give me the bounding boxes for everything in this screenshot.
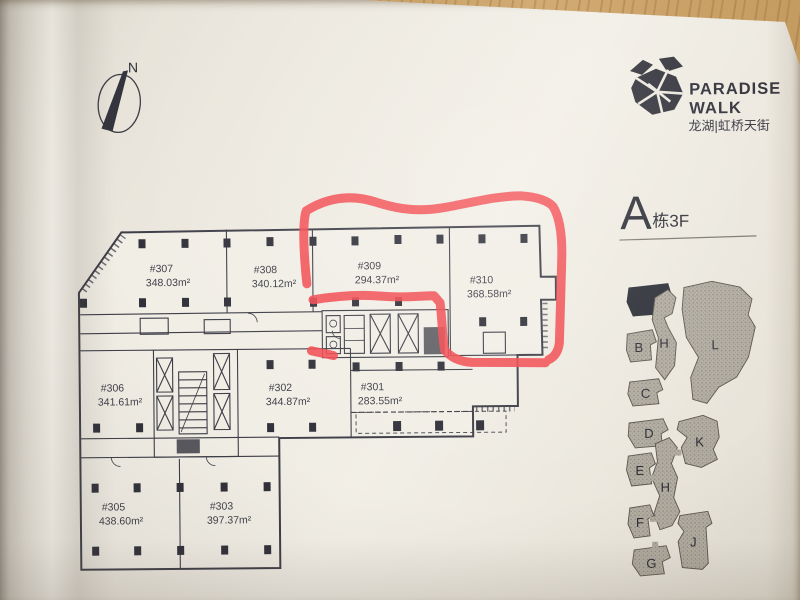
building-g-label: G [646, 556, 656, 571]
room-301-id: #301 [361, 381, 385, 393]
building-l-label: L [711, 337, 718, 352]
room-308-area: 340.12m² [252, 278, 297, 290]
building-e-label: E [635, 463, 644, 478]
floor-plan: #307 348.03m² #308 340.12m² #309 294.37m… [78, 196, 564, 570]
room-309-area: 294.37m² [355, 274, 400, 286]
photo-of-floorplan-page: N PARADISE WALK [0, 0, 800, 600]
room-305-id: #305 [102, 501, 126, 513]
north-label: N [128, 59, 138, 75]
building-h-upper-label: H [659, 336, 669, 351]
page-drawing: N PARADISE WALK [0, 0, 800, 600]
paradise-walk-logo: PARADISE WALK 龙湖|虹桥天街 [630, 56, 782, 134]
room-301-area: 283.55m² [358, 395, 403, 407]
room-310-id: #310 [470, 274, 494, 286]
building-b-label: B [634, 340, 643, 355]
room-307-area: 348.03m² [146, 277, 191, 289]
building-f-label: F [636, 515, 644, 530]
compass-icon: N [95, 59, 143, 134]
room-303-id: #303 [210, 500, 234, 512]
paper-sheet: N PARADISE WALK [0, 0, 800, 600]
floor-title-suffix: 栋3F [652, 211, 689, 230]
room-303-area: 397.37m² [207, 514, 252, 526]
logo-rose-icon [630, 57, 684, 115]
logo-subtitle: 龙湖|虹桥天街 [688, 118, 770, 134]
room-302-id: #302 [269, 382, 293, 394]
room-308-id: #308 [254, 264, 278, 276]
room-309-id: #309 [358, 260, 382, 272]
building-h-lower-label: H [661, 480, 671, 495]
room-306-area: 341.61m² [98, 396, 143, 408]
building-l [682, 281, 756, 404]
floor-title: A 栋3F [619, 185, 756, 240]
site-map: A B H L C D E K H F J G [625, 281, 758, 576]
floor-title-letter: A [620, 186, 652, 239]
room-305-area: 438.60m² [99, 515, 144, 527]
room-307-id: #307 [150, 263, 174, 275]
logo-name-line1: PARADISE [689, 80, 781, 99]
room-306-id: #306 [101, 382, 125, 394]
room-302-area: 344.87m² [266, 396, 311, 408]
building-j-label: J [690, 534, 697, 549]
building-k-label: K [695, 434, 704, 449]
logo-name-line2: WALK [689, 99, 742, 117]
building-c-label: C [641, 386, 651, 401]
room-310-area: 368.58m² [467, 288, 512, 300]
building-a-label: A [638, 297, 647, 312]
building-d-label: D [644, 426, 654, 441]
page-content: N PARADISE WALK [0, 0, 800, 600]
